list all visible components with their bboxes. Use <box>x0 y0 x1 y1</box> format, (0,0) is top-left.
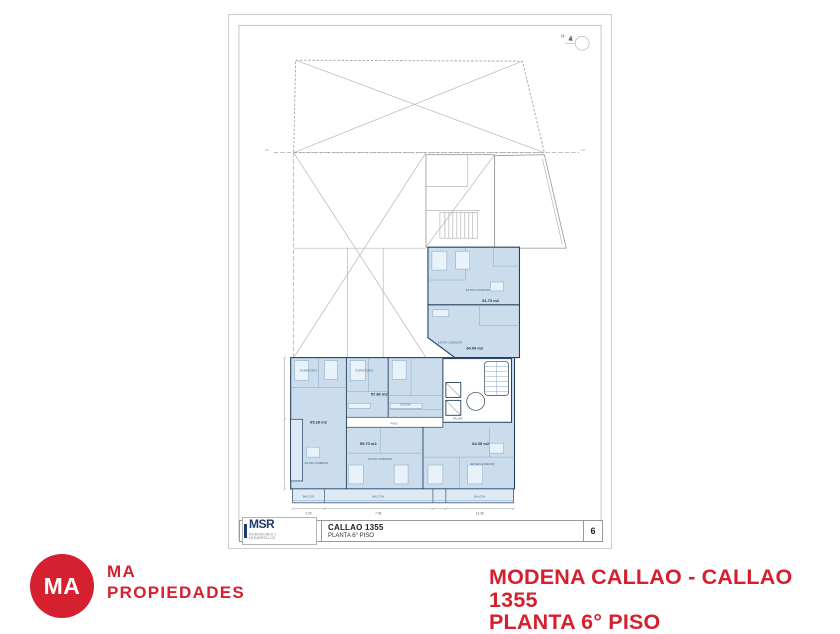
balcony-label: BALCON <box>373 494 384 498</box>
sheet-number: 6 <box>583 521 602 541</box>
brand-name-bottom: PROPIEDADES <box>107 582 245 603</box>
plan-caption: MODENA CALLAO - CALLAO 1355 PLANTA 6° PI… <box>489 566 840 634</box>
msr-logo-box: MSR INVERSIONES Y DESARROLLOS <box>242 517 317 545</box>
room-label: DORMITORIO <box>355 369 373 373</box>
msr-logo: MSR INVERSIONES Y DESARROLLOS <box>240 521 322 541</box>
msr-logo-subtext: INVERSIONES Y DESARROLLOS <box>249 533 281 540</box>
dim-label: 13.38 <box>476 511 484 515</box>
brand-name-top: MA <box>107 561 245 582</box>
area-label: 57.80 m2 <box>371 391 389 396</box>
dim-label: 7.08 <box>375 511 381 515</box>
ma-brand-name: MA PROPIEDADES <box>107 561 245 618</box>
msr-logo-text: MSR <box>249 519 313 530</box>
ma-logo-initials: MA <box>44 573 81 600</box>
axis-label-left: LM <box>265 148 269 152</box>
room-label: COCINA <box>400 402 411 406</box>
room-label: ESTAR COMEDOR <box>471 462 495 466</box>
area-label: 59.70 m2 <box>360 441 378 446</box>
msr-logo-bar <box>244 524 247 538</box>
caption-line1: MODENA CALLAO - CALLAO 1355 <box>489 566 840 611</box>
title-block: MSR INVERSIONES Y DESARROLLOS CALLAO 135… <box>239 520 603 542</box>
dim-label: 2.90 <box>305 511 311 515</box>
room-label: DORMITORIO <box>300 369 318 373</box>
floorplan-sheet: N LM LM <box>228 14 612 549</box>
titleblock-project: CALLAO 1355 <box>328 523 583 532</box>
area-label: 64.04 m2 <box>466 346 484 351</box>
titleblock-text: CALLAO 1355 PLANTA 6° PISO <box>322 521 583 541</box>
room-label: ESTAR COMEDOR <box>305 461 329 465</box>
floorplan-drawing: N LM LM <box>229 15 611 548</box>
area-label: 61.70 m2 <box>482 298 500 303</box>
room-label: PALIER <box>453 416 463 420</box>
titleblock-plan-title: PLANTA 6° PISO <box>328 533 583 539</box>
caption-line2: PLANTA 6° PISO <box>489 611 840 634</box>
side-balcony <box>291 419 303 481</box>
balcony-label: BALCON <box>303 494 314 498</box>
room-label: ESTAR COMEDOR <box>438 341 462 345</box>
area-label: 65.26 m2 <box>310 419 328 424</box>
room-label: ESTAR COMEDOR <box>368 457 392 461</box>
core <box>443 359 512 423</box>
balcony-label: BALCON <box>474 494 485 498</box>
room-label: PASO <box>390 422 397 426</box>
ma-propiedades-logo: MA MA PROPIEDADES <box>30 554 245 618</box>
room-label: ESTAR COMEDOR <box>466 288 490 292</box>
ma-logo-circle-icon: MA <box>30 554 94 618</box>
north-arrow-icon: N <box>561 33 589 50</box>
north-label: N <box>561 33 564 38</box>
area-label: 64.36 m2 <box>472 441 490 446</box>
axis-label-right: LM <box>581 148 585 152</box>
